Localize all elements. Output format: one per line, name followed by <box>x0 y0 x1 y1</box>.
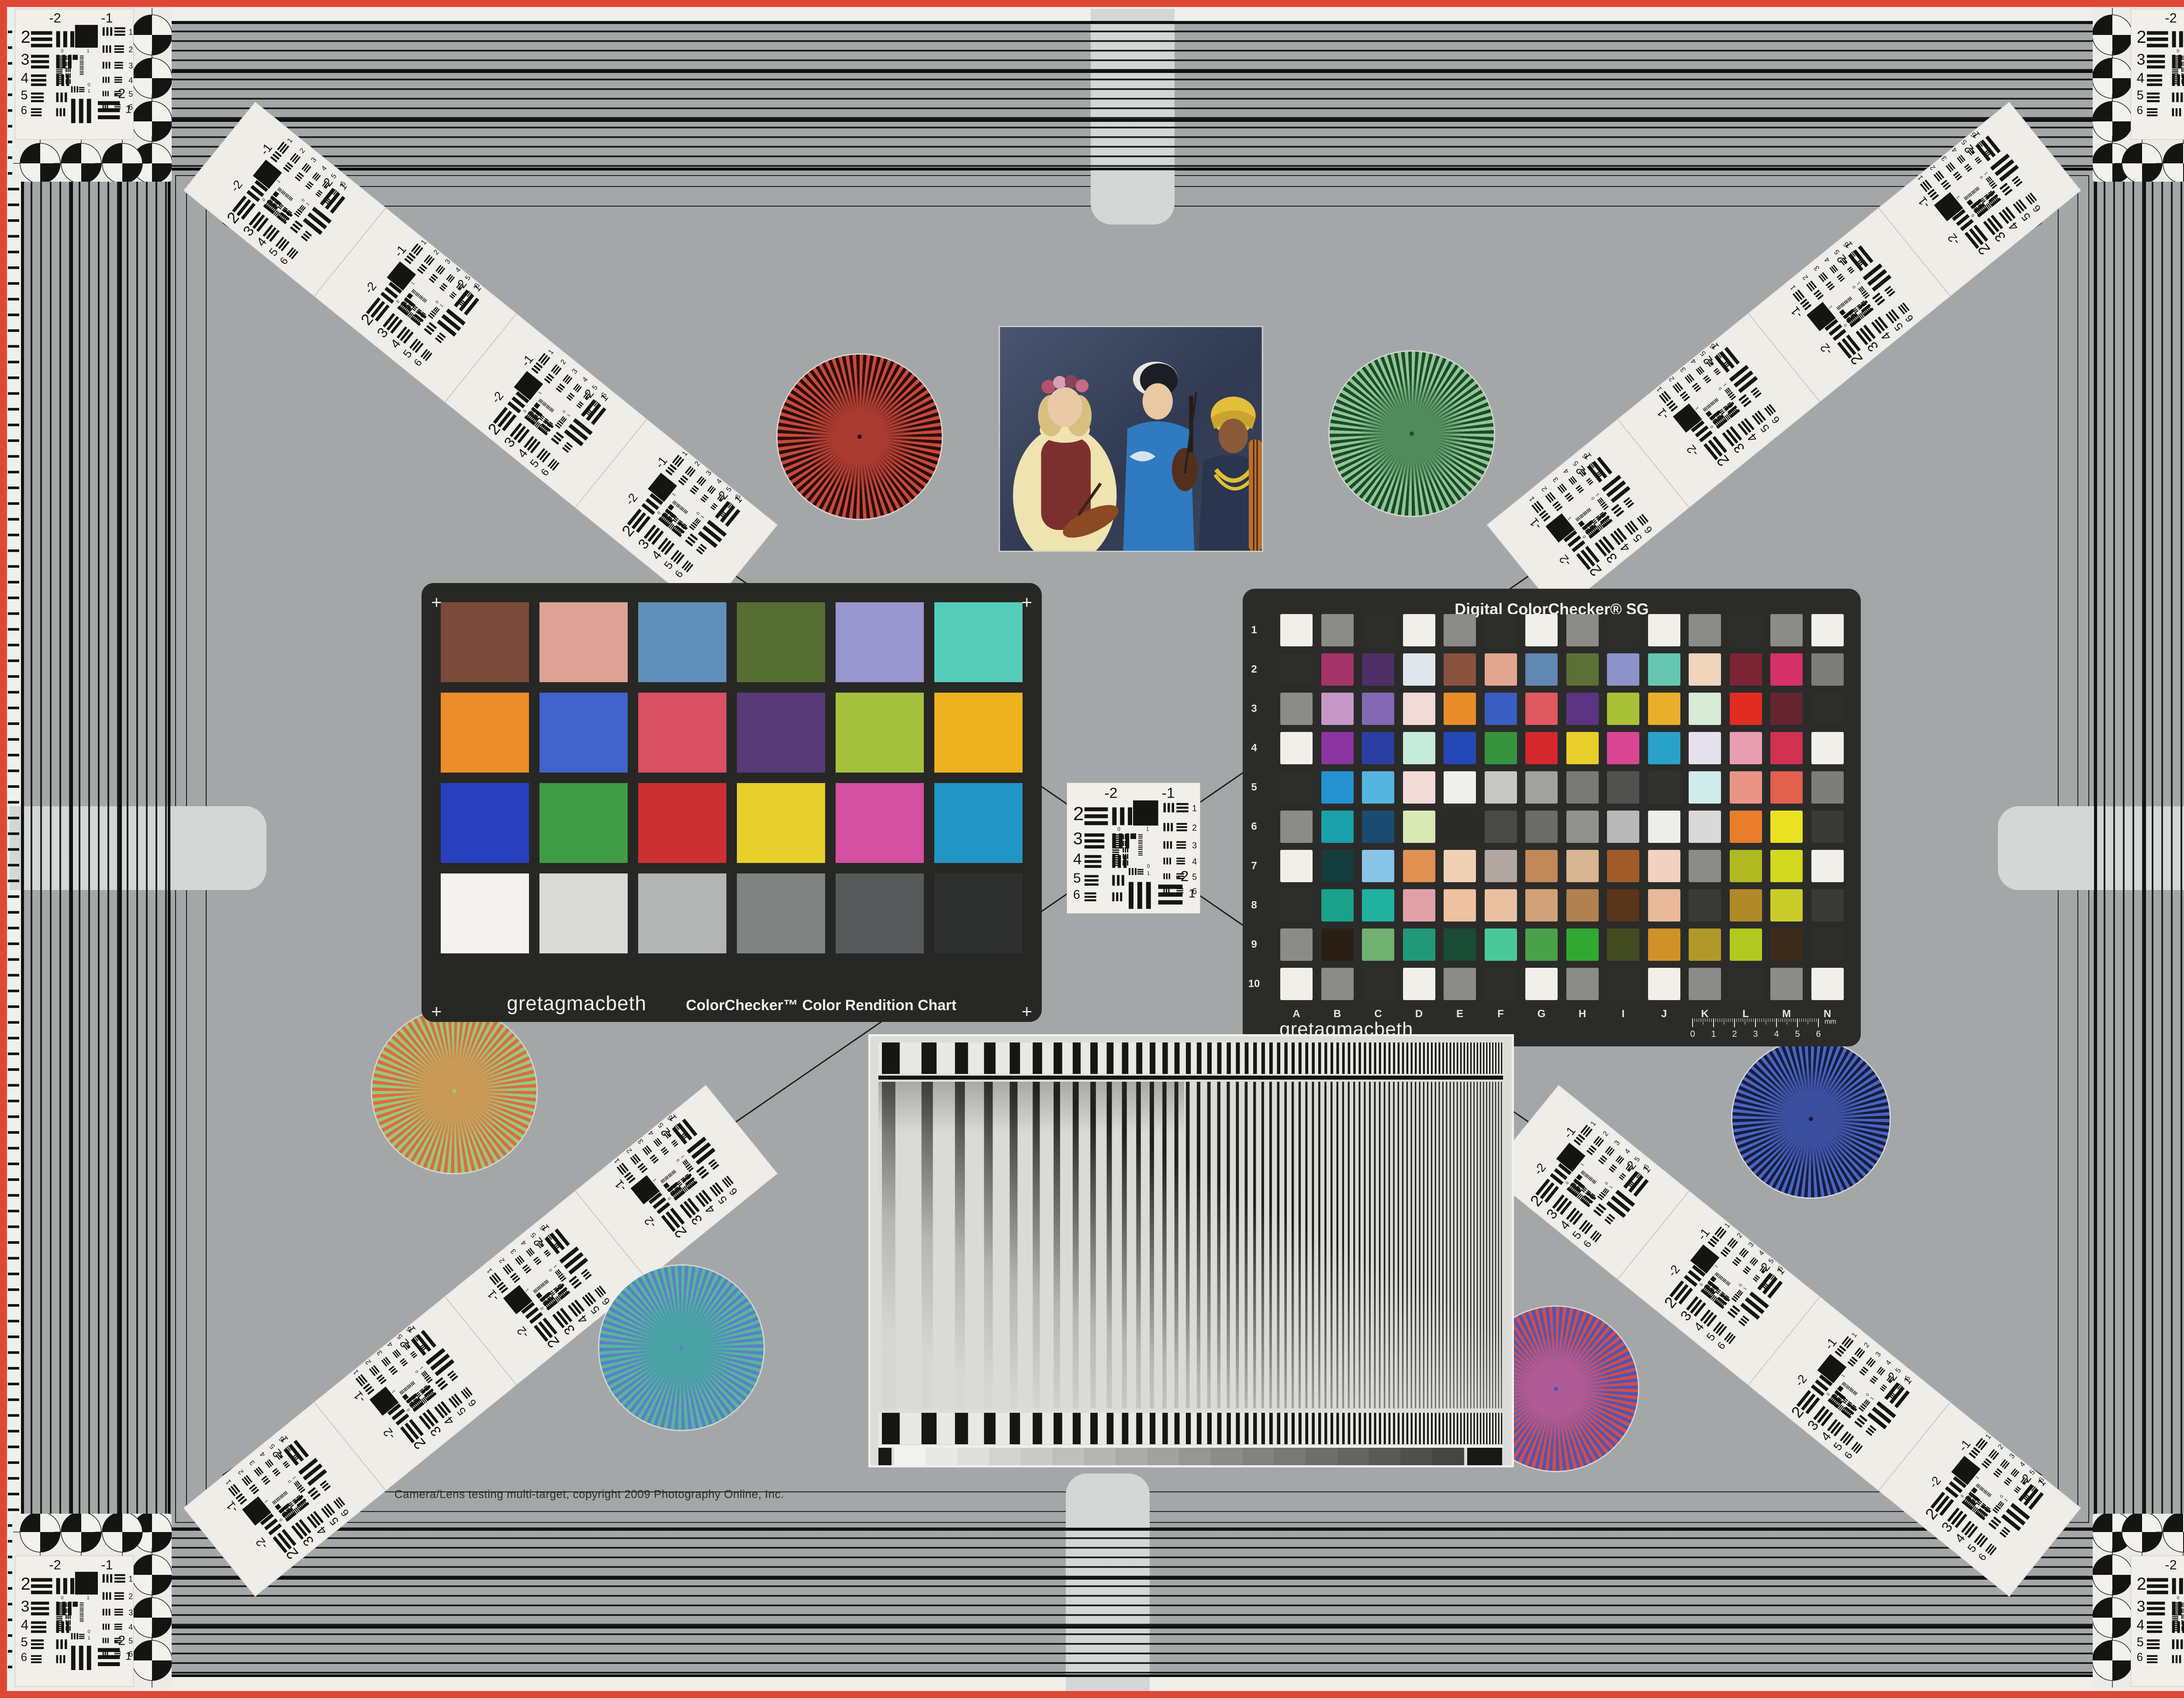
sg-patch <box>1403 811 1435 843</box>
svg-text:1: 1 <box>680 1154 685 1159</box>
svg-text:4: 4 <box>1823 256 1832 264</box>
sg-patch <box>1321 850 1354 882</box>
sg-patch <box>1770 732 1803 764</box>
svg-text:3: 3 <box>128 1608 133 1617</box>
svg-text:4: 4 <box>1618 540 1633 555</box>
svg-text:5: 5 <box>1192 872 1197 882</box>
svg-text:2: 2 <box>559 358 568 366</box>
sg-patch <box>1607 653 1639 686</box>
sg-patch <box>1280 928 1313 961</box>
sg-patch <box>1403 732 1435 764</box>
sg-patch <box>1811 732 1844 764</box>
svg-text:3: 3 <box>1874 1350 1883 1358</box>
svg-text:5: 5 <box>1073 870 1081 886</box>
svg-text:1: 1 <box>278 1434 290 1445</box>
svg-text:2: 2 <box>1863 1341 1871 1349</box>
svg-text:6: 6 <box>1842 1450 1855 1461</box>
cc-patch <box>441 693 529 773</box>
sg-patch <box>1321 693 1354 725</box>
sg-patch <box>1730 732 1762 764</box>
svg-text:2: 2 <box>128 45 133 54</box>
svg-text:1: 1 <box>553 1264 558 1269</box>
svg-text:3: 3 <box>1730 440 1747 456</box>
svg-text:-2: -2 <box>228 177 245 194</box>
sg-patch <box>1648 850 1680 882</box>
corner-usaf-card: -2-1234561234560101-21 <box>15 1556 134 1687</box>
sg-patch <box>1525 850 1558 882</box>
sg-patch <box>1566 928 1599 961</box>
svg-text:3: 3 <box>561 1322 578 1338</box>
svg-text:6: 6 <box>339 1507 351 1519</box>
svg-text:0: 0 <box>61 48 63 54</box>
svg-text:0: 0 <box>2177 48 2179 54</box>
svg-text:-1: -1 <box>1654 406 1672 423</box>
sweep-bar-row <box>878 1413 1503 1444</box>
svg-text:4: 4 <box>2137 70 2145 86</box>
svg-text:2: 2 <box>298 147 307 155</box>
svg-text:5: 5 <box>266 245 280 259</box>
svg-text:0: 0 <box>395 299 401 304</box>
svg-text:1: 1 <box>1580 1162 1585 1167</box>
svg-text:6: 6 <box>411 357 424 369</box>
svg-text:0: 0 <box>1999 1494 2004 1499</box>
sg-patch <box>1321 928 1354 961</box>
star-blue-center-dot <box>1809 1117 1813 1121</box>
svg-text:2: 2 <box>2137 1574 2146 1594</box>
svg-text:0: 0 <box>1590 496 1596 501</box>
svg-text:5: 5 <box>1633 1155 1641 1163</box>
cc-patch <box>638 873 726 953</box>
sg-patch <box>1362 850 1394 882</box>
cc-patch <box>836 783 924 863</box>
sg-patch <box>1280 653 1313 686</box>
colorchecker-title: ColorChecker™ Color Rendition Chart <box>686 997 957 1014</box>
svg-text:0: 0 <box>1604 1181 1609 1186</box>
svg-text:2: 2 <box>1073 803 1084 825</box>
svg-text:1: 1 <box>88 89 90 94</box>
sg-patch <box>1485 889 1517 921</box>
svg-text:2: 2 <box>282 1545 301 1563</box>
svg-text:6: 6 <box>2137 1650 2143 1663</box>
star-red <box>778 355 942 519</box>
svg-text:3: 3 <box>688 1212 705 1228</box>
sg-col-label: F <box>1485 1008 1517 1020</box>
svg-text:5: 5 <box>128 1637 133 1646</box>
svg-text:0: 0 <box>1970 213 1976 218</box>
sg-patch <box>1811 653 1844 686</box>
sg-row-label: 10 <box>1245 978 1263 990</box>
svg-text:1: 1 <box>292 1475 297 1480</box>
svg-text:2: 2 <box>1801 273 1810 281</box>
star-red-green-center-dot <box>452 1089 456 1093</box>
svg-text:4: 4 <box>1192 857 1197 866</box>
svg-text:0: 0 <box>1843 322 1848 328</box>
svg-text:4: 4 <box>128 1623 133 1632</box>
svg-text:3: 3 <box>21 1598 30 1615</box>
svg-text:-2: -2 <box>49 11 61 26</box>
svg-text:3: 3 <box>21 51 30 68</box>
svg-text:3: 3 <box>509 1247 518 1255</box>
sg-patch <box>1648 653 1680 686</box>
sg-patch <box>1648 811 1680 843</box>
sg-patch <box>1648 928 1680 961</box>
svg-text:5: 5 <box>268 1443 277 1450</box>
sg-patch <box>1730 771 1762 804</box>
svg-text:6: 6 <box>1581 1238 1594 1250</box>
sg-patch <box>1403 889 1435 921</box>
sg-patch <box>1648 614 1680 646</box>
sg-patch <box>1566 968 1599 1000</box>
svg-text:2: 2 <box>543 1333 563 1351</box>
svg-text:-2: -2 <box>514 1324 532 1341</box>
sg-patch <box>1689 850 1721 882</box>
svg-text:-2: -2 <box>1926 1474 1944 1491</box>
svg-text:0: 0 <box>1852 284 1857 290</box>
cc-patch <box>836 873 924 953</box>
sg-patch <box>1689 771 1721 804</box>
svg-text:5: 5 <box>1833 248 1842 255</box>
svg-text:3: 3 <box>1864 338 1881 355</box>
svg-text:6: 6 <box>539 466 552 478</box>
sweep-top-shade <box>878 1082 1184 1134</box>
svg-text:-1: -1 <box>1956 1437 1973 1454</box>
sg-patch <box>1485 653 1517 686</box>
sg-patch <box>1525 811 1558 843</box>
cc-patch <box>934 873 1023 953</box>
sg-patch <box>1525 889 1558 921</box>
svg-text:1: 1 <box>1581 451 1593 462</box>
svg-text:0: 0 <box>667 1196 672 1201</box>
svg-text:2: 2 <box>2137 28 2146 47</box>
svg-text:0: 0 <box>1117 826 1120 832</box>
sg-patch <box>1648 889 1680 921</box>
svg-text:5: 5 <box>21 1636 28 1650</box>
svg-text:3: 3 <box>1991 229 2008 245</box>
cc-patch <box>539 602 628 682</box>
sg-patch <box>1444 889 1476 921</box>
cc-patch <box>441 783 529 863</box>
svg-text:1: 1 <box>1527 495 1536 503</box>
corner-usaf-card: -2-1234561234560101-21 <box>15 9 134 140</box>
sg-patch <box>1403 968 1435 1000</box>
cc-patch <box>638 693 726 773</box>
svg-text:4: 4 <box>320 164 328 172</box>
sg-patch <box>1566 850 1599 882</box>
star-red-green <box>372 1009 536 1173</box>
svg-text:4: 4 <box>1745 431 1760 445</box>
sg-patch <box>1770 928 1803 961</box>
svg-text:1: 1 <box>1146 826 1149 832</box>
sg-patch <box>1403 771 1435 804</box>
sg-patch <box>1730 811 1762 843</box>
sg-patch <box>1444 968 1476 1000</box>
gray-step-wedge <box>878 1448 1503 1465</box>
cc-patch <box>934 602 1023 682</box>
svg-text:6: 6 <box>673 568 685 580</box>
svg-text:5: 5 <box>329 172 338 180</box>
sg-patch <box>1403 693 1435 725</box>
svg-text:0: 0 <box>562 409 567 414</box>
sg-patch <box>1444 693 1476 725</box>
sg-patch <box>1485 693 1517 725</box>
svg-text:-2: -2 <box>623 490 640 507</box>
svg-text:0: 0 <box>1717 386 1723 391</box>
sg-patch <box>1566 693 1599 725</box>
svg-text:0: 0 <box>1865 1392 1870 1398</box>
sg-patch <box>1566 889 1599 921</box>
svg-text:-1: -1 <box>351 1389 368 1406</box>
svg-text:3: 3 <box>570 367 579 375</box>
svg-text:6: 6 <box>727 1186 740 1198</box>
svg-text:-1: -1 <box>1822 1336 1839 1353</box>
svg-text:-1: -1 <box>1695 1225 1712 1242</box>
svg-text:6: 6 <box>2031 203 2043 214</box>
sg-row-label: 6 <box>1245 821 1263 833</box>
svg-text:5: 5 <box>1795 1029 1800 1039</box>
svg-text:-1: -1 <box>653 454 670 471</box>
sg-patch <box>1607 968 1639 1000</box>
svg-text:5: 5 <box>529 1231 538 1239</box>
test-chart-stage: -2-1234561234560101-21 -2-12345612345601… <box>0 0 2184 1698</box>
svg-text:0: 0 <box>1709 424 1714 429</box>
sg-patch <box>1811 811 1844 843</box>
svg-text:4: 4 <box>21 70 29 86</box>
sg-patch <box>1485 811 1517 843</box>
svg-text:-2: -2 <box>2165 11 2177 26</box>
svg-text:1: 1 <box>87 48 90 54</box>
svg-text:6: 6 <box>1769 414 1782 426</box>
svg-text:-2: -2 <box>253 1535 270 1552</box>
svg-text:4: 4 <box>576 1312 591 1326</box>
svg-text:0: 0 <box>1960 1494 1965 1499</box>
svg-text:-2: -2 <box>1792 1372 1810 1389</box>
sg-patch <box>1607 771 1639 804</box>
svg-text:3: 3 <box>427 1423 444 1439</box>
cc-patch <box>638 783 726 863</box>
svg-text:-2: -2 <box>1684 442 1701 459</box>
sg-patch <box>1770 653 1803 686</box>
sg-patch <box>1607 693 1639 725</box>
sg-patch <box>1321 968 1354 1000</box>
svg-text:-2: -2 <box>1531 1160 1548 1177</box>
cc-patch <box>737 873 825 953</box>
sg-patch <box>1525 614 1558 646</box>
svg-text:5: 5 <box>2137 89 2144 103</box>
svg-text:2: 2 <box>1586 562 1605 580</box>
corner-usaf-card: -2-1234561234560101-21 <box>2131 1556 2184 1687</box>
svg-text:0: 0 <box>548 1267 553 1273</box>
svg-text:-2: -2 <box>380 1425 398 1443</box>
svg-text:2: 2 <box>237 1468 245 1476</box>
svg-text:1: 1 <box>1828 304 1834 309</box>
sg-patch <box>1444 928 1476 961</box>
sg-row-label: 1 <box>1245 624 1263 636</box>
svg-text:3: 3 <box>2137 51 2146 68</box>
star-green-blue-center-dot <box>679 1346 684 1350</box>
svg-text:4: 4 <box>21 1617 29 1633</box>
svg-text:1: 1 <box>1567 516 1572 521</box>
svg-text:1: 1 <box>286 137 294 145</box>
svg-text:2: 2 <box>1713 452 1732 470</box>
sg-patch <box>1525 771 1558 804</box>
svg-text:0: 0 <box>287 1479 292 1484</box>
star-green <box>1330 352 1494 516</box>
sg-patch <box>1811 693 1844 725</box>
svg-text:1: 1 <box>1711 1029 1716 1039</box>
svg-text:4: 4 <box>1562 467 1570 475</box>
usaf-resolution-target: -2-1234561234560101-21 <box>2131 9 2184 127</box>
sg-patch <box>1485 928 1517 961</box>
svg-text:4: 4 <box>519 1239 528 1247</box>
svg-text:-1: -1 <box>1162 785 1175 801</box>
svg-text:1: 1 <box>439 303 444 308</box>
svg-text:1: 1 <box>125 104 131 116</box>
sg-patch <box>1485 850 1517 882</box>
sg-patch <box>1770 889 1803 921</box>
usaf-resolution-target: -2-1234561234560101-21 <box>15 1556 133 1674</box>
cc-patch <box>441 602 529 682</box>
musicians-test-photo <box>999 326 1263 552</box>
svg-text:-2: -2 <box>1665 1262 1683 1279</box>
svg-text:5: 5 <box>128 90 133 99</box>
svg-text:1: 1 <box>419 1366 424 1370</box>
sg-row-label: 2 <box>1245 663 1263 676</box>
svg-text:-2: -2 <box>1945 231 1963 248</box>
sg-patch <box>1485 614 1517 646</box>
svg-text:3: 3 <box>1813 264 1821 272</box>
svg-text:1: 1 <box>1984 171 1989 176</box>
sg-patch <box>1280 850 1313 882</box>
svg-text:1: 1 <box>1609 1185 1614 1190</box>
svg-text:0: 0 <box>88 82 90 87</box>
sweep-rule <box>878 1076 1503 1080</box>
center-resolution-card: -2-1234561234560101-21 <box>1067 783 1200 914</box>
sg-patch <box>1648 968 1680 1000</box>
svg-text:-2: -2 <box>489 389 506 406</box>
cc-patch <box>539 783 628 863</box>
colorchecker-classic-board: + + + + gretagmacbeth ColorChecker™ Colo… <box>422 583 1042 1022</box>
corner-target-bottom-right: -2-1234561234560101-21 <box>2093 1514 2184 1688</box>
svg-text:0: 0 <box>2177 1595 2179 1601</box>
cc-patch <box>836 602 924 682</box>
sg-patch <box>1689 653 1721 686</box>
svg-text:5: 5 <box>2137 1636 2144 1650</box>
sg-patch <box>1444 614 1476 646</box>
svg-text:0: 0 <box>696 511 701 516</box>
svg-text:0: 0 <box>522 409 528 414</box>
svg-text:3: 3 <box>2137 1598 2146 1615</box>
svg-text:1: 1 <box>1975 1475 1980 1480</box>
svg-text:0: 0 <box>1699 1282 1704 1287</box>
svg-text:-1: -1 <box>391 242 409 259</box>
sg-patch <box>1811 771 1844 804</box>
sg-patch <box>1403 614 1435 646</box>
sg-row-label: 4 <box>1245 742 1263 754</box>
svg-text:-2: -2 <box>362 279 379 296</box>
svg-text:1: 1 <box>1722 383 1728 387</box>
sg-patch <box>1770 771 1803 804</box>
svg-text:3: 3 <box>1603 550 1620 566</box>
svg-text:2: 2 <box>1974 240 1994 258</box>
sg-patch <box>1689 889 1721 921</box>
sg-row-label: 8 <box>1245 899 1263 911</box>
sg-patch <box>1607 732 1639 764</box>
colorchecker-sg-board: Digital ColorChecker® SG 12345678910 ABC… <box>1243 589 1861 1046</box>
corner-target-bottom-left: -2-1234561234560101-21 <box>12 1514 172 1688</box>
sg-patch <box>1280 732 1313 764</box>
sg-patch <box>1689 811 1721 843</box>
svg-text:5: 5 <box>1965 1542 1979 1555</box>
sg-patch <box>1321 811 1354 843</box>
sg-patch <box>1525 732 1558 764</box>
svg-text:4: 4 <box>2006 219 2022 234</box>
svg-text:-2: -2 <box>1818 341 1835 358</box>
svg-text:6: 6 <box>1073 888 1080 902</box>
svg-text:-1: -1 <box>1527 515 1544 532</box>
cc-patch <box>836 693 924 773</box>
svg-text:1: 1 <box>538 390 543 395</box>
svg-text:0: 0 <box>1979 174 1984 179</box>
svg-text:0: 0 <box>1582 534 1587 539</box>
sg-patch <box>1403 850 1435 882</box>
svg-text:2: 2 <box>1847 350 1866 368</box>
sg-patch <box>1485 732 1517 764</box>
sg-patch <box>1770 693 1803 725</box>
svg-text:0: 0 <box>539 1305 545 1311</box>
svg-text:-1: -1 <box>518 352 536 369</box>
copyright-text: Camera/Lens testing multi-target, copyri… <box>394 1487 784 1501</box>
svg-text:0: 0 <box>88 1629 90 1634</box>
sg-patch <box>1444 811 1476 843</box>
svg-text:5: 5 <box>591 383 599 391</box>
svg-text:0: 0 <box>435 300 440 305</box>
corner-usaf-card: -2-1234561234560101-21 <box>2131 9 2184 140</box>
frequency-sweep-card <box>868 1034 1514 1467</box>
sg-patch <box>1811 928 1844 961</box>
svg-text:-1: -1 <box>101 11 113 26</box>
svg-text:6: 6 <box>21 1650 28 1663</box>
svg-text:1: 1 <box>1694 406 1700 411</box>
svg-text:-2: -2 <box>49 1558 61 1573</box>
star-green-blue <box>599 1266 764 1430</box>
sg-patch <box>1648 732 1680 764</box>
svg-text:-2: -2 <box>1556 552 1574 569</box>
svg-text:0: 0 <box>414 1369 419 1374</box>
sg-patch <box>1525 693 1558 725</box>
svg-text:4: 4 <box>128 76 133 85</box>
svg-text:3: 3 <box>300 1533 317 1550</box>
svg-text:1: 1 <box>1970 129 1982 141</box>
sg-patch <box>1362 889 1394 921</box>
sg-patch <box>1811 614 1844 646</box>
svg-text:2: 2 <box>410 1435 429 1453</box>
svg-text:0: 0 <box>1565 1180 1570 1186</box>
svg-text:4: 4 <box>442 1414 457 1428</box>
svg-text:6: 6 <box>1903 312 1916 324</box>
svg-text:1: 1 <box>264 1499 269 1504</box>
svg-text:0: 0 <box>657 511 662 516</box>
sg-patch <box>1280 614 1313 646</box>
sg-patch <box>1689 693 1721 725</box>
sg-row-label: 3 <box>1245 703 1263 715</box>
svg-text:6: 6 <box>466 1397 479 1409</box>
sg-ruler-unit: mm <box>1825 1018 1836 1025</box>
sg-patch <box>1321 732 1354 764</box>
svg-text:0: 0 <box>406 1407 411 1412</box>
sg-patch <box>1525 968 1558 1000</box>
svg-text:0: 0 <box>61 1595 63 1601</box>
svg-text:1: 1 <box>1189 887 1195 900</box>
